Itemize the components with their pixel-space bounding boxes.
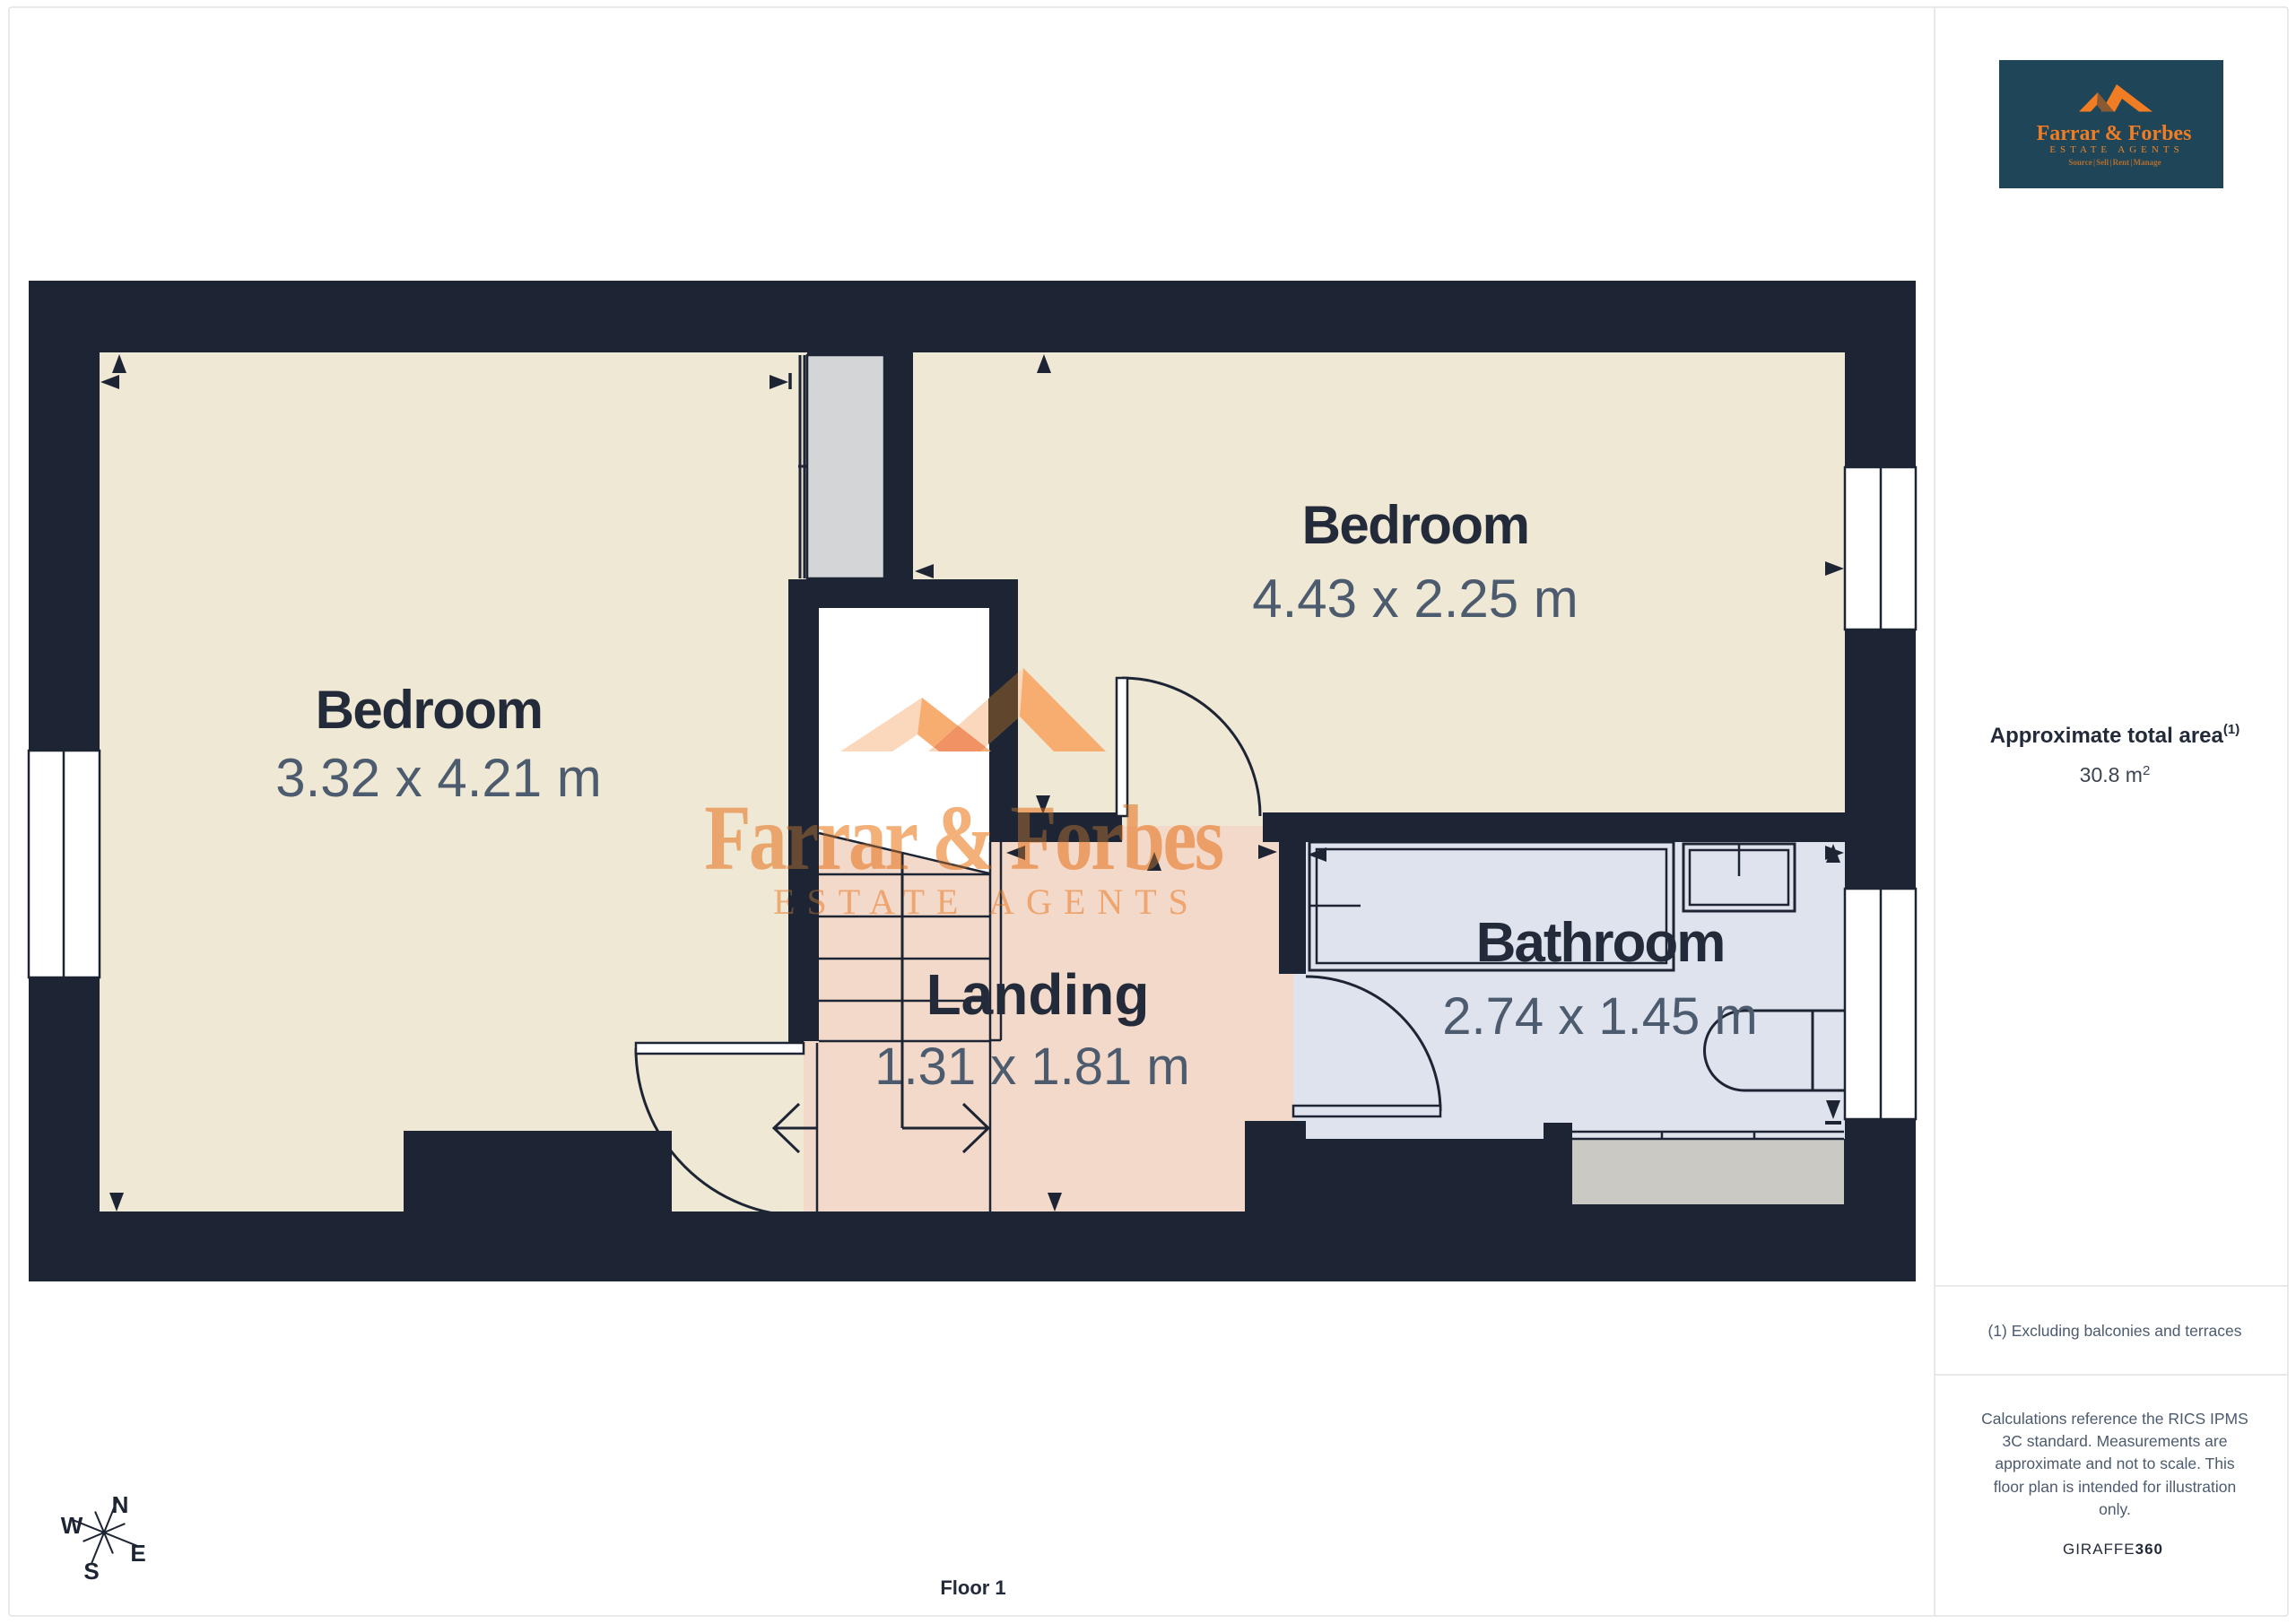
svg-text:30.8 m2: 30.8 m2 [2080,763,2151,786]
svg-text:ESTATE AGENTS: ESTATE AGENTS [2049,144,2183,155]
svg-text:E: E [130,1540,145,1567]
svg-text:Farrar & Forbes: Farrar & Forbes [2037,122,2192,145]
svg-text:Calculations reference the RIC: Calculations reference the RICS IPMS [1981,1410,2248,1428]
svg-text:Source | Sell | Rent | Manage: Source | Sell | Rent | Manage [2068,158,2161,167]
svg-text:W: W [61,1512,83,1539]
svg-text:S: S [83,1558,99,1585]
svg-text:Floor 1: Floor 1 [940,1576,1005,1599]
svg-text:N: N [112,1491,129,1518]
svg-text:(1) Excluding balconies and te: (1) Excluding balconies and terraces [1987,1322,2241,1340]
svg-text:3.32 x 4.21 m: 3.32 x 4.21 m [275,748,602,808]
svg-text:3C standard. Measurements are: 3C standard. Measurements are [2003,1432,2228,1450]
svg-text:2.74 x 1.45 m: 2.74 x 1.45 m [1442,987,1757,1046]
svg-text:Landing: Landing [926,962,1150,1027]
svg-text:ESTATE AGENTS: ESTATE AGENTS [773,881,1200,922]
svg-text:approximate and not to scale.: approximate and not to scale. This [1995,1455,2234,1472]
svg-text:only.: only. [2099,1500,2131,1518]
svg-text:Approximate total area(1): Approximate total area(1) [1990,722,2239,748]
svg-text:GIRAFFE360: GIRAFFE360 [2063,1541,2163,1558]
svg-text:Bedroom: Bedroom [1302,495,1529,555]
svg-text:Farrar & Forbes: Farrar & Forbes [704,786,1222,890]
svg-text:Bedroom: Bedroom [316,680,543,740]
svg-text:1.31 x 1.81 m: 1.31 x 1.81 m [874,1038,1189,1096]
svg-text:floor plan is intended for ill: floor plan is intended for illustration [1994,1478,2236,1496]
svg-text:4.43 x 2.25 m: 4.43 x 2.25 m [1252,569,1578,629]
svg-text:Bathroom: Bathroom [1476,912,1725,974]
